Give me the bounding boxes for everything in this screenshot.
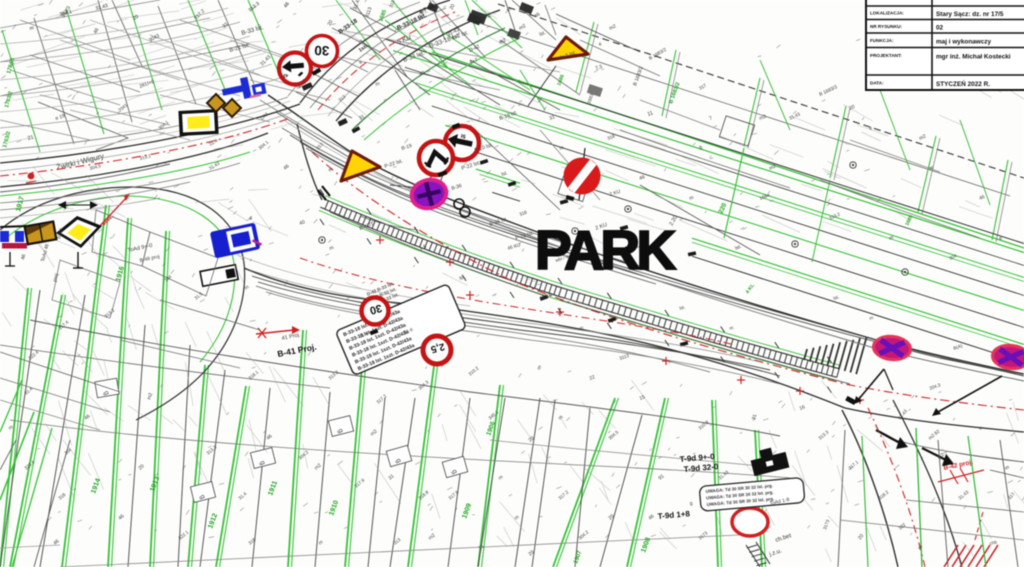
- svg-text:STYCZEŃ 2022 R.: STYCZEŃ 2022 R.: [936, 79, 990, 88]
- svg-text:PROJEKTANT:: PROJEKTANT:: [870, 53, 902, 58]
- svg-text:maj i wykonawczy: maj i wykonawczy: [936, 38, 991, 45]
- svg-text:PARK: PARK: [535, 219, 677, 281]
- svg-text:30: 30: [314, 43, 330, 59]
- svg-text:02: 02: [936, 24, 944, 31]
- svg-text:Stary Sącz: dz. nr 17/5: Stary Sącz: dz. nr 17/5: [936, 11, 1004, 18]
- svg-text:42: 42: [282, 73, 288, 78]
- svg-text:LOKALIZACJA:: LOKALIZACJA:: [870, 11, 904, 16]
- svg-text:DATA:: DATA:: [870, 81, 884, 86]
- svg-text:mgr inż. Michał Kostecki: mgr inż. Michał Kostecki: [936, 53, 1011, 60]
- svg-text:NR RYSUNKU:: NR RYSUNKU:: [870, 24, 902, 29]
- svg-text:FUNKCJA:: FUNKCJA:: [870, 38, 894, 43]
